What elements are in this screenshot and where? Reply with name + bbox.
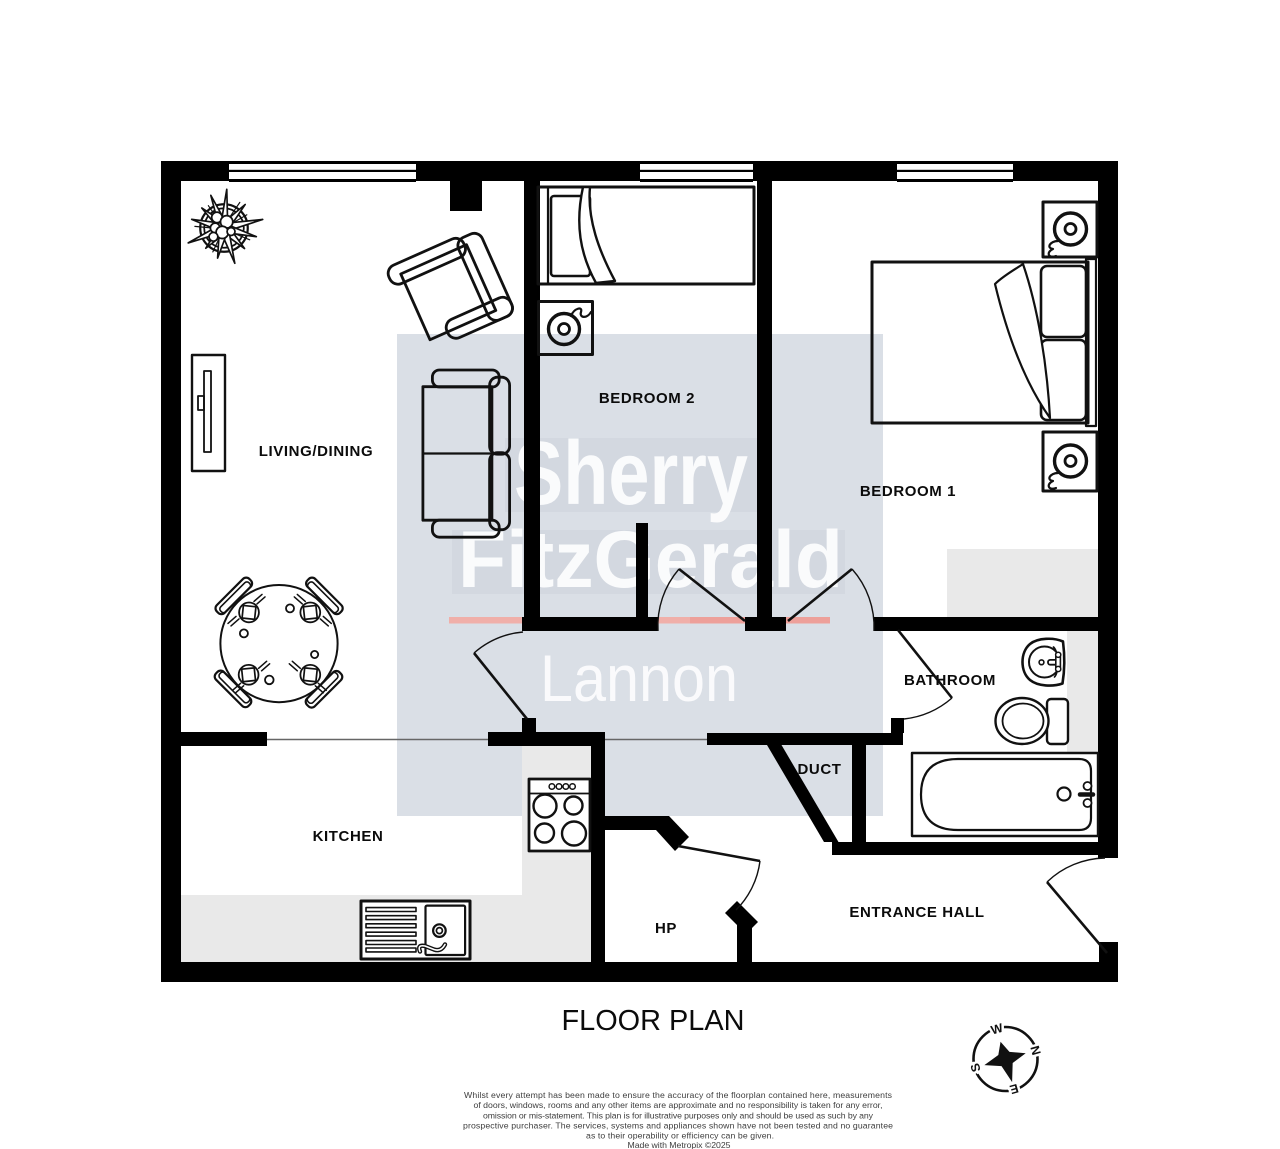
svg-text:Lannon: Lannon <box>540 641 738 715</box>
svg-text:ENTRANCE HALL: ENTRANCE HALL <box>849 904 984 921</box>
svg-text:Made with Metropix ©2025: Made with Metropix ©2025 <box>628 1140 731 1149</box>
svg-text:KITCHEN: KITCHEN <box>313 828 384 845</box>
svg-text:LIVING/DINING: LIVING/DINING <box>259 443 373 460</box>
svg-text:Whilst every attempt has been: Whilst every attempt has been made to en… <box>464 1090 893 1100</box>
svg-text:BATHROOM: BATHROOM <box>904 672 996 689</box>
svg-text:BEDROOM 1: BEDROOM 1 <box>860 483 956 500</box>
svg-text:DUCT: DUCT <box>797 761 841 778</box>
svg-text:FitzGerald: FitzGerald <box>458 515 843 605</box>
svg-text:Sherry: Sherry <box>514 424 748 524</box>
svg-text:FLOOR PLAN: FLOOR PLAN <box>562 1005 745 1037</box>
svg-text:as to their operability or eff: as to their operability or efficiency ca… <box>586 1131 774 1141</box>
svg-text:BEDROOM 2: BEDROOM 2 <box>599 390 695 407</box>
svg-text:of doors, windows, rooms and a: of doors, windows, rooms and any other i… <box>474 1100 883 1110</box>
svg-text:prospective purchaser. The ser: prospective purchaser. The services, sys… <box>463 1120 893 1130</box>
svg-text:omission or mis-statement. Thi: omission or mis-statement. This plan is … <box>483 1110 874 1120</box>
svg-text:HP: HP <box>655 920 677 937</box>
